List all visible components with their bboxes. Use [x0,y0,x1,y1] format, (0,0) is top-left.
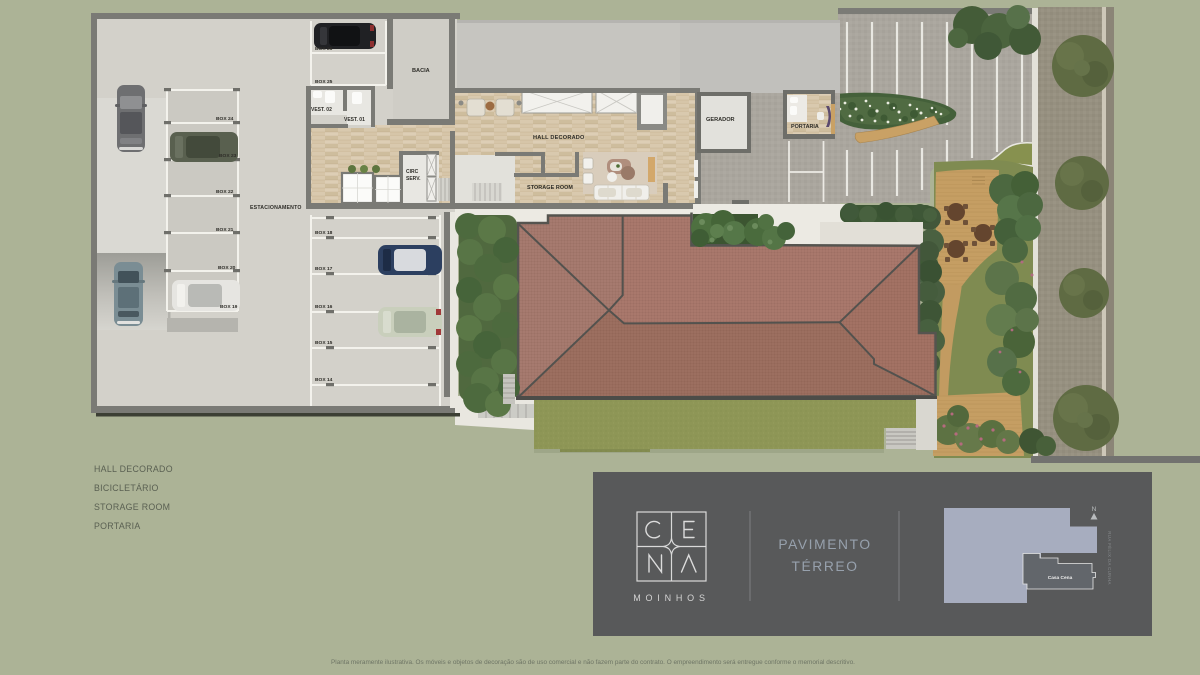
svg-text:HALL DECORADO: HALL DECORADO [94,464,173,474]
svg-text:BOX 24: BOX 24 [216,116,234,122]
svg-text:BOX 21: BOX 21 [216,227,234,233]
svg-text:BICICLETÁRIO: BICICLETÁRIO [94,483,159,493]
svg-text:Casa Cena: Casa Cena [1048,575,1073,581]
svg-text:BOX 23: BOX 23 [219,153,237,159]
svg-text:MOINHOS: MOINHOS [633,593,710,603]
svg-text:TÉRREO: TÉRREO [791,558,858,574]
svg-text:STORAGE ROOM: STORAGE ROOM [94,502,170,512]
svg-text:BOX 18: BOX 18 [315,230,333,236]
svg-text:RUA FÉLIX DA CUNHA: RUA FÉLIX DA CUNHA [1107,531,1112,585]
svg-text:BOX 14: BOX 14 [315,377,333,383]
svg-text:BOX 20: BOX 20 [218,265,236,271]
svg-text:BOX 19: BOX 19 [220,304,238,310]
svg-text:BOX 16: BOX 16 [315,304,333,310]
svg-text:VEST. 01: VEST. 01 [344,117,365,123]
svg-text:PAVIMENTO: PAVIMENTO [778,537,871,552]
svg-text:BOX 25: BOX 25 [315,79,333,85]
svg-text:PORTARIA: PORTARIA [791,124,819,130]
svg-text:GERADOR: GERADOR [706,117,735,123]
svg-text:VEST. 02: VEST. 02 [311,107,332,113]
svg-text:Planta meramente ilustrativa.: Planta meramente ilustrativa. Os móveis … [331,659,855,666]
svg-text:CIRC: CIRC [406,169,419,175]
svg-text:BOX 17: BOX 17 [315,266,333,272]
svg-text:HALL DECORADO: HALL DECORADO [533,135,585,141]
svg-text:PORTARIA: PORTARIA [94,521,141,531]
svg-text:BACIA: BACIA [412,68,430,74]
svg-text:STORAGE ROOM: STORAGE ROOM [527,185,573,191]
svg-text:BOX 26: BOX 26 [315,46,333,52]
svg-text:BOX 15: BOX 15 [315,340,333,346]
svg-text:SERV.: SERV. [406,176,421,182]
svg-text:N: N [1092,506,1097,513]
svg-text:ESTACIONAMENTO: ESTACIONAMENTO [250,205,302,211]
svg-text:BOX 22: BOX 22 [216,189,234,195]
